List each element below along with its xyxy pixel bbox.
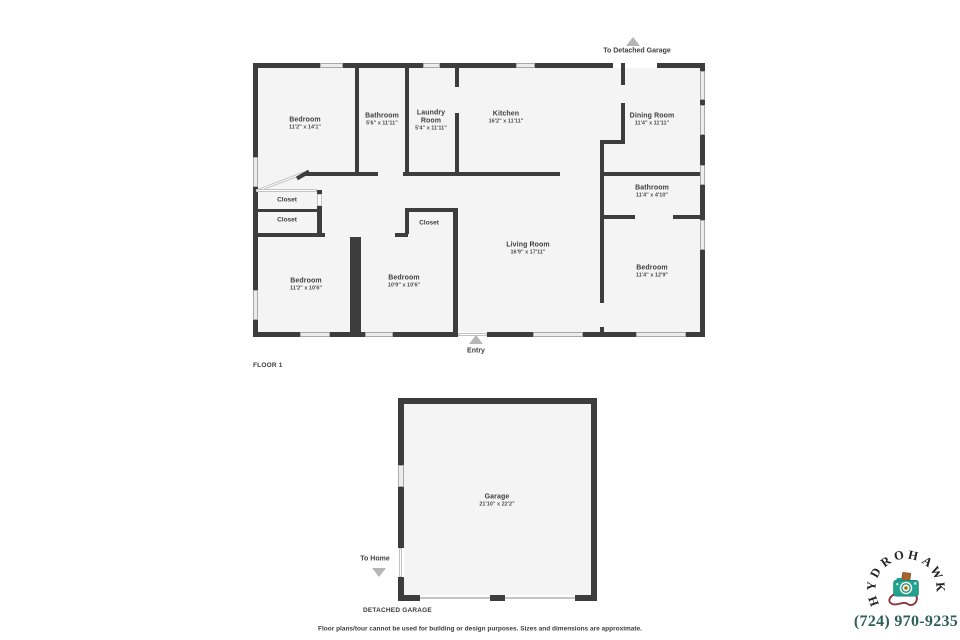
wall-segment xyxy=(253,187,258,290)
wall-segment xyxy=(600,172,700,176)
door-opening xyxy=(399,548,402,577)
disclaimer-text: Floor plans/tour cannot be used for buil… xyxy=(318,626,642,633)
floor1-floor-area xyxy=(258,68,700,332)
wall-segment xyxy=(398,398,597,404)
wall-segment xyxy=(330,332,365,337)
watermark-letter: D xyxy=(868,565,885,580)
wall-segment xyxy=(355,68,359,172)
floor1-section-label: FLOOR 1 xyxy=(253,362,283,369)
window xyxy=(533,332,583,337)
wall-segment xyxy=(350,237,361,332)
wall-segment xyxy=(487,332,533,337)
window xyxy=(423,63,440,68)
door-opening xyxy=(317,194,322,206)
wall-segment xyxy=(700,185,705,220)
wall-segment xyxy=(455,113,459,172)
wall-segment xyxy=(600,219,604,303)
window xyxy=(700,165,705,185)
window xyxy=(253,157,258,187)
closet-label-3: Closet xyxy=(419,220,439,227)
window xyxy=(700,105,705,135)
wall-segment xyxy=(258,233,325,237)
door-opening xyxy=(256,189,317,192)
room-label-laundry-room: Laundry Room 5'4" x 11'11" xyxy=(413,110,449,133)
wall-segment xyxy=(305,172,378,176)
garage-section-label: DETACHED GARAGE xyxy=(363,607,432,614)
wall-segment xyxy=(600,327,604,332)
window xyxy=(320,63,343,68)
wall-segment xyxy=(258,209,317,212)
floor-plan-document: Bedroom 11'2" x 14'1" Bathroom 5'6" x 11… xyxy=(0,0,960,640)
wall-segment xyxy=(621,103,625,140)
wall-segment xyxy=(253,63,258,157)
wall-segment xyxy=(405,208,453,212)
wall-segment xyxy=(535,63,613,68)
camera-icon xyxy=(884,569,928,607)
wall-segment xyxy=(440,63,516,68)
watermark-letter: H xyxy=(907,547,920,564)
to-detached-garage-label: To Detached Garage xyxy=(603,48,671,55)
room-label-bedroom-3: Bedroom 11'2" x 10'6" xyxy=(290,278,322,293)
window xyxy=(365,332,393,337)
room-label-bedroom-1: Bedroom 11'2" x 14'1" xyxy=(289,117,321,132)
room-label-garage: Garage 21'10" x 22'2" xyxy=(479,494,514,509)
watermark-letter: Y xyxy=(864,581,880,591)
to-home-label: To Home xyxy=(360,556,389,563)
watermark-letter: K xyxy=(932,581,948,592)
wall-segment xyxy=(405,68,409,172)
wall-segment xyxy=(673,215,700,219)
closet-label-2: Closet xyxy=(277,217,297,224)
wall-segment xyxy=(621,63,625,85)
room-label-living-room: Living Room 16'9" x 17'11" xyxy=(506,242,550,257)
window xyxy=(300,332,330,337)
window xyxy=(253,290,258,320)
window xyxy=(398,465,404,487)
wall-segment xyxy=(403,172,560,176)
wall-segment xyxy=(398,398,404,465)
wall-segment xyxy=(453,208,458,332)
watermark-letter: O xyxy=(893,547,906,564)
watermark-letter: R xyxy=(878,553,894,570)
room-label-bedroom-2: Bedroom 11'4" x 12'9" xyxy=(636,265,668,280)
room-label-dining-room: Dining Room 11'4" x 11'11" xyxy=(630,113,675,128)
wall-segment xyxy=(700,135,705,165)
wall-segment xyxy=(405,212,409,234)
wall-segment xyxy=(253,332,300,337)
wall-segment xyxy=(490,595,505,601)
room-label-bedroom-4: Bedroom 10'9" x 10'6" xyxy=(388,275,420,290)
room-label-kitchen: Kitchen 16'2" x 11'11" xyxy=(489,111,524,126)
window xyxy=(700,220,705,250)
door-opening xyxy=(420,597,490,599)
wall-segment xyxy=(591,398,597,601)
entry-label: Entry xyxy=(467,348,485,355)
window xyxy=(700,71,705,100)
wall-segment xyxy=(398,487,404,548)
wall-segment xyxy=(657,63,705,68)
window xyxy=(516,63,535,68)
wall-segment xyxy=(253,320,258,337)
wall-segment xyxy=(583,332,636,337)
wall-segment xyxy=(575,595,597,601)
window xyxy=(636,332,686,337)
watermark-letter: H xyxy=(865,593,882,607)
room-label-bathroom-1: Bathroom 5'6" x 11'11" xyxy=(365,113,399,128)
wall-segment xyxy=(455,68,459,87)
wall-segment xyxy=(393,332,458,337)
wall-segment xyxy=(253,63,320,68)
wall-segment xyxy=(700,250,705,337)
wall-segment xyxy=(398,595,420,601)
wall-segment xyxy=(600,176,604,215)
wall-segment xyxy=(600,144,604,172)
wall-segment xyxy=(700,63,705,71)
room-label-bathroom-2: Bathroom 11'4" x 4'10" xyxy=(635,185,669,200)
to-home-arrow-icon xyxy=(372,568,386,577)
door-opening xyxy=(505,597,575,599)
wall-segment xyxy=(600,215,635,219)
floor1-plan: Bedroom 11'2" x 14'1" Bathroom 5'6" x 11… xyxy=(253,63,705,337)
entry-arrow-icon xyxy=(469,335,483,344)
closet-label-1: Closet xyxy=(277,197,297,204)
detached-garage-plan: Garage 21'10" x 22'2" xyxy=(398,398,597,601)
watermark-phone: (724) 970-9235 xyxy=(854,613,958,631)
to-detached-garage-arrow-icon xyxy=(626,37,640,46)
